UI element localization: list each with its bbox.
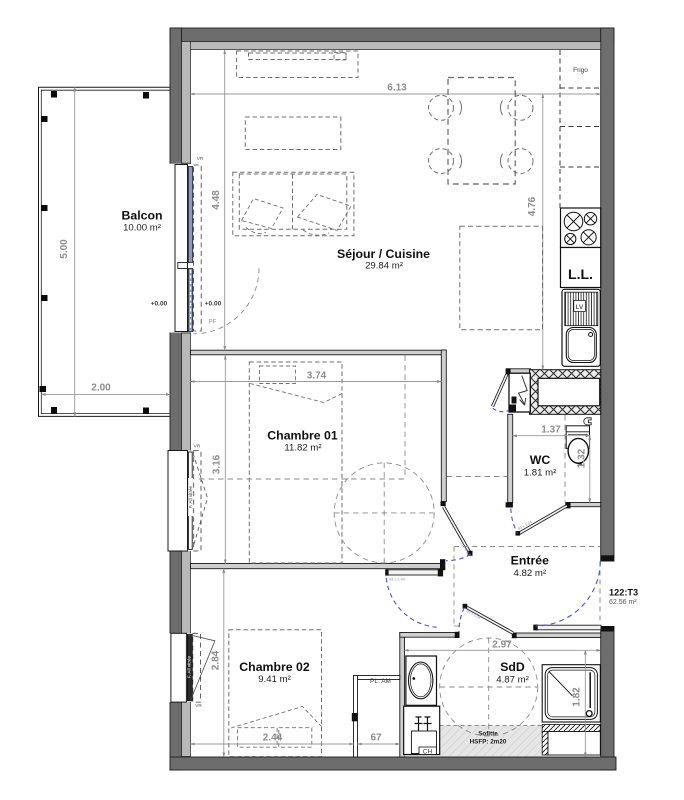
- svg-text:PF: PF: [209, 320, 217, 326]
- svg-text:SdD: SdD: [500, 660, 525, 674]
- svg-text:3.74: 3.74: [307, 371, 327, 382]
- svg-text:WC: WC: [530, 453, 551, 467]
- svg-text:1.82: 1.82: [572, 687, 583, 707]
- svg-text:Chambre 01: Chambre 01: [267, 429, 338, 443]
- svg-text:Balcon: Balcon: [122, 209, 163, 223]
- svg-text:HSFP: 2m20: HSFP: 2m20: [470, 739, 507, 746]
- svg-text:2.44: 2.44: [263, 733, 283, 744]
- svg-text:1.81 m²: 1.81 m²: [524, 468, 557, 479]
- svg-text:PL. AM: PL. AM: [370, 678, 391, 685]
- svg-text:6.13: 6.13: [387, 83, 407, 94]
- svg-text:5.00: 5.00: [59, 239, 70, 259]
- svg-text:4.82 m²: 4.82 m²: [514, 568, 547, 579]
- svg-text:CH: CH: [423, 749, 433, 756]
- svg-text:VR: VR: [197, 156, 204, 162]
- svg-text:Entrée: Entrée: [511, 554, 549, 568]
- svg-text:VR: VR: [194, 444, 201, 450]
- svg-text:L.L.: L.L.: [568, 266, 593, 282]
- svg-text:Frigo: Frigo: [573, 67, 588, 74]
- svg-text:67: 67: [370, 733, 382, 744]
- svg-text:3.16: 3.16: [212, 454, 223, 474]
- svg-text:4.76: 4.76: [527, 196, 538, 216]
- svg-text:Sofitte: Sofitte: [478, 731, 498, 738]
- svg-text:4.87 m²: 4.87 m²: [496, 675, 529, 686]
- svg-text:Séjour / Cuisine: Séjour / Cuisine: [337, 247, 430, 261]
- svg-text:4.48: 4.48: [211, 190, 222, 210]
- svg-text:10.00 m²: 10.00 m²: [123, 223, 162, 234]
- svg-text:2.00: 2.00: [91, 383, 111, 394]
- svg-text:11.82 m²: 11.82 m²: [284, 443, 322, 454]
- svg-text:F. All vitrée: F. All vitrée: [188, 485, 193, 508]
- svg-text:LV: LV: [576, 304, 584, 311]
- svg-text:122:T3: 122:T3: [609, 588, 638, 598]
- svg-text:+0.00: +0.00: [205, 301, 222, 308]
- svg-text:2.97: 2.97: [492, 640, 512, 651]
- svg-text:29.84 m²: 29.84 m²: [365, 261, 404, 272]
- svg-text:1.37: 1.37: [541, 425, 561, 436]
- svg-text:F. All vitrée: F. All vitrée: [187, 655, 192, 678]
- svg-text:83 x 2.04: 83 x 2.04: [389, 578, 405, 582]
- svg-text:62.56 m²: 62.56 m²: [609, 599, 637, 606]
- svg-text:+0.00: +0.00: [151, 301, 168, 308]
- svg-text:Chambre 02: Chambre 02: [239, 660, 310, 674]
- svg-text:2.84: 2.84: [210, 650, 221, 670]
- svg-text:9.41 m²: 9.41 m²: [258, 674, 291, 685]
- svg-text:1.32: 1.32: [576, 448, 587, 468]
- svg-text:VR: VR: [195, 703, 202, 709]
